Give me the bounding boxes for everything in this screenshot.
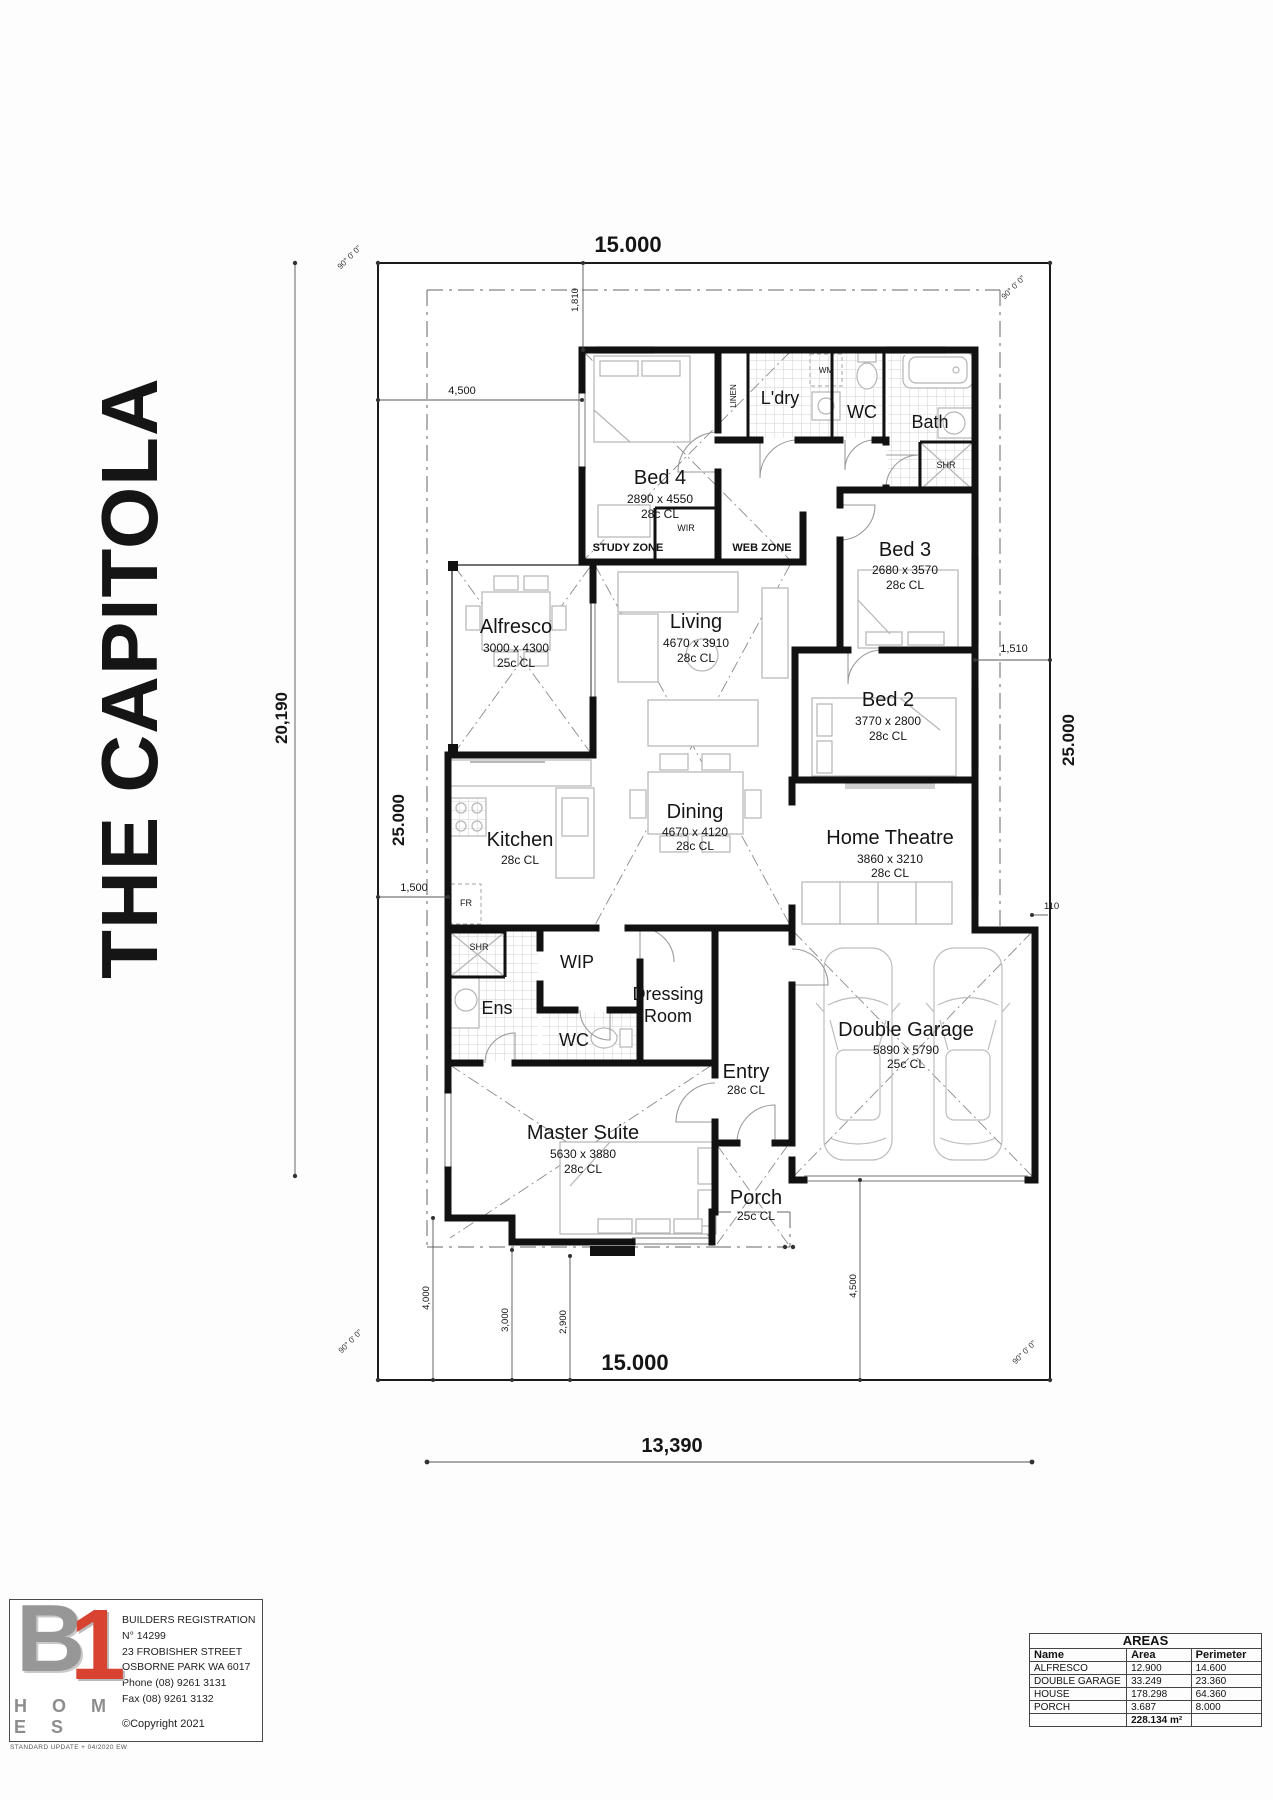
areas-col-area: Area [1127,1649,1192,1662]
room-label-bed3: Bed 3 [879,539,931,561]
builder-logo-box: B 1 H O M E S BUILDERS REGISTRATION N° 1… [9,1599,263,1742]
dim-bottom-d1: 4,000 [421,1286,432,1310]
room-label-master: Master Suite [527,1122,639,1144]
room-size-theatre: 3860 x 3210 [857,852,923,866]
builder-fax: Fax (08) 9261 3132 [122,1692,255,1708]
plan-title: THE CAPITOLA [85,377,174,979]
dim-top-left: 4,500 [448,385,476,397]
room-ceiling-entry: 28c CL [727,1083,765,1097]
room-size-master: 5630 x 3880 [550,1147,616,1161]
areas-col-name: Name [1030,1649,1127,1662]
room-ceiling-alfresco: 25c CL [497,656,535,670]
dim-left-outer: 20,190 [272,692,291,744]
room-size-dining: 4670 x 4120 [662,825,728,839]
room-label-theatre: Home Theatre [826,827,953,849]
zone-linen: LINEN [729,384,738,408]
builder-address2: OSBORNE PARK WA 6017 [122,1660,255,1676]
room-label-wc1: WC [847,402,877,422]
logo-homes-text: H O M E S [14,1696,122,1738]
room-size-bed2: 3770 x 2800 [855,714,921,728]
room-ceiling-dining: 28c CL [676,839,714,853]
zone-wir: WIR [677,523,695,533]
builder-address1: 23 FROBISHER STREET [122,1645,255,1661]
room-ceiling-kitchen: 28c CL [501,853,539,867]
room-size-living: 4670 x 3910 [663,636,729,650]
room-label-wip: WIP [560,952,594,972]
dim-right-boundary: 25.000 [1059,714,1078,766]
room-label-entry: Entry [723,1061,770,1083]
room-label-bed2: Bed 2 [862,689,914,711]
area-perimeter: 8.000 [1191,1701,1261,1714]
dim-bottom-d4: 4,500 [848,1274,859,1298]
dim-bottom-d3: 2,900 [558,1310,569,1334]
area-perimeter: 64.360 [1191,1688,1261,1701]
floor-plan-sheet: THE CAPITOLA [0,0,1273,1800]
room-label-wc2: WC [559,1030,589,1050]
areas-total-spacer [1030,1714,1127,1727]
room-label-living: Living [670,611,722,633]
logo-digit-one: 1 [70,1588,126,1703]
area-value: 33.249 [1127,1675,1192,1688]
areas-table: AREAS Name Area Perimeter ALFRESCO 12.90… [1029,1633,1262,1727]
revision-footnote: STANDARD UPDATE + 04/2020 EW [10,1744,127,1751]
zone-study: STUDY ZONE [593,542,664,554]
wc2-toilet [591,1028,632,1048]
dim-bottom-total: 13,390 [641,1435,702,1457]
zone-shr-ens: SHR [469,942,489,952]
copyright: ©Copyright 2021 [122,1716,255,1733]
floor-plan-drawing: THE CAPITOLA [0,0,1273,1800]
room-label-bath: Bath [911,412,948,432]
dim-top-offset: 1,810 [570,288,581,312]
area-perimeter: 14.600 [1191,1662,1261,1675]
room-label-ens: Ens [481,998,512,1018]
room-size-bed3: 2680 x 3570 [872,563,938,577]
area-name: HOUSE [1030,1688,1127,1701]
room-ceiling-bed4: 28c CL [641,507,679,521]
room-label-dining: Dining [667,801,724,823]
area-name: ALFRESCO [1030,1662,1127,1675]
room-label-kitchen: Kitchen [487,829,554,851]
areas-row: DOUBLE GARAGE 33.249 23.360 [1030,1675,1262,1688]
wc-toilet [857,353,877,389]
dim-bottom-d2: 3,000 [500,1308,511,1332]
room-size-alfresco: 3000 x 4300 [483,641,549,655]
area-name: PORCH [1030,1701,1127,1714]
area-value: 3.687 [1127,1701,1192,1714]
room-label-alfresco: Alfresco [480,616,552,638]
builder-phone: Phone (08) 9261 3131 [122,1676,255,1692]
dim-top-width: 15.000 [594,232,661,257]
room-ceiling-garage: 25c CL [887,1057,925,1071]
room-ceiling-bed2: 28c CL [869,729,907,743]
room-label-garage: Double Garage [838,1019,974,1041]
room-label-dressing1: Dressing [632,984,703,1004]
areas-row: HOUSE 178.298 64.360 [1030,1688,1262,1701]
dim-right-small: 1,510 [1000,643,1028,655]
areas-total-value: 228.134 m² [1127,1714,1192,1727]
areas-total-row: 228.134 m² [1030,1714,1262,1727]
dim-bottom-width: 15.000 [601,1350,668,1375]
b1-homes-logo: B 1 H O M E S [10,1600,122,1741]
zone-fr: FR [460,898,472,908]
room-ceiling-master: 28c CL [564,1162,602,1176]
areas-col-perimeter: Perimeter [1191,1649,1261,1662]
zone-shr-bath: SHR [936,460,956,470]
angle-bottom-left: 90° 0' 0" [337,1328,365,1356]
room-size-bed4: 2890 x 4550 [627,492,693,506]
zone-web: WEB ZONE [732,542,791,554]
zone-wm: WM [819,366,834,375]
area-value: 12.900 [1127,1662,1192,1675]
angle-top-left: 90° 0' 0" [336,244,364,272]
room-label-porch: Porch [730,1187,782,1209]
dim-left-boundary: 25.000 [389,794,408,846]
areas-title: AREAS [1030,1634,1262,1649]
bed4-furniture [594,356,690,442]
builder-reg-line1: BUILDERS REGISTRATION [122,1613,255,1629]
room-ceiling-porch: 25c CL [737,1209,775,1223]
dim-left-small: 1,500 [400,882,428,894]
area-name: DOUBLE GARAGE [1030,1675,1127,1688]
room-label-bed4: Bed 4 [634,467,686,489]
room-size-garage: 5890 x 5790 [873,1043,939,1057]
areas-row: PORCH 3.687 8.000 [1030,1701,1262,1714]
room-ceiling-bed3: 28c CL [886,578,924,592]
area-perimeter: 23.360 [1191,1675,1261,1688]
room-label-ldry: L'dry [761,388,799,408]
builder-reg-line2: N° 14299 [122,1629,255,1645]
areas-total-spacer [1191,1714,1261,1727]
room-ceiling-living: 28c CL [677,651,715,665]
builder-details: BUILDERS REGISTRATION N° 14299 23 FROBIS… [122,1600,255,1741]
room-label-dressing2: Room [644,1006,692,1026]
area-value: 178.298 [1127,1688,1192,1701]
areas-row: ALFRESCO 12.900 14.600 [1030,1662,1262,1675]
dim-right-tiny: 110 [1044,901,1059,912]
room-ceiling-theatre: 28c CL [871,866,909,880]
